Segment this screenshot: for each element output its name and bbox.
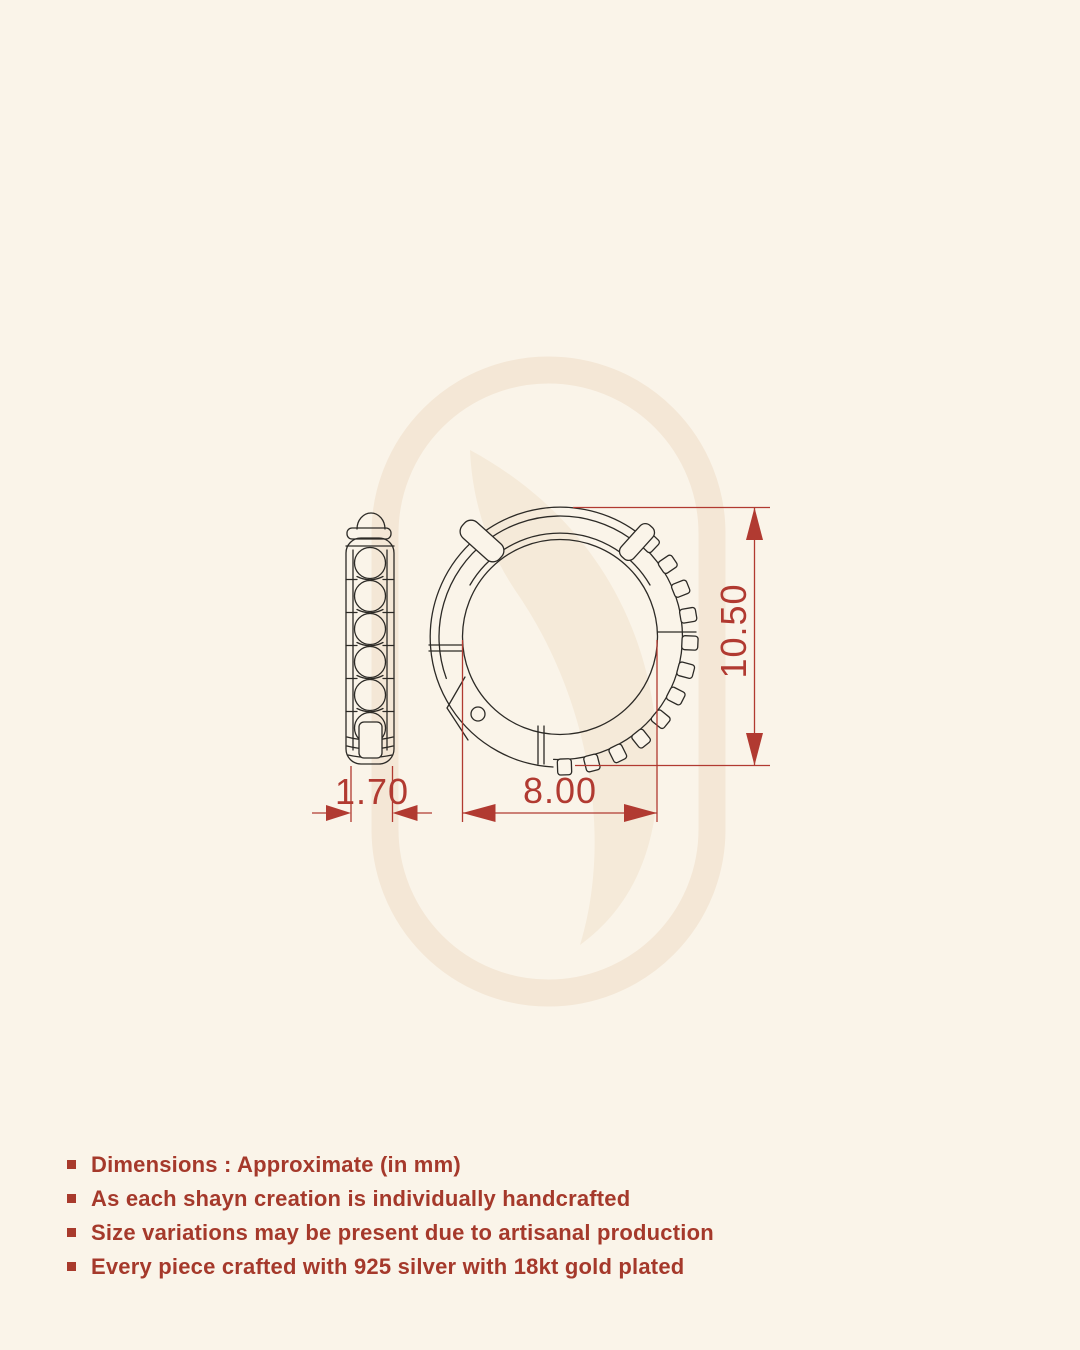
note-row: Every piece crafted with 925 silver with… xyxy=(67,1251,714,1285)
note-text: Dimensions : Approximate (in mm) xyxy=(91,1149,461,1180)
inner-diameter-dimension-label: 8.00 xyxy=(523,770,597,812)
front-left-seam xyxy=(429,645,463,651)
brand-watermark xyxy=(385,370,712,993)
side-view-clasp xyxy=(359,722,382,758)
square-bullet-icon xyxy=(67,1160,76,1169)
square-bullet-icon xyxy=(67,1262,76,1271)
note-text: Every piece crafted with 925 silver with… xyxy=(91,1251,684,1282)
note-row: As each shayn creation is individually h… xyxy=(67,1183,714,1217)
technical-drawing-svg xyxy=(0,0,1080,1350)
front-clasp-cut xyxy=(447,677,468,740)
outer-height-dimension-label: 10.50 xyxy=(713,583,755,678)
earring-side-view-drawing xyxy=(346,513,394,764)
watermark-capsule-icon xyxy=(385,370,712,993)
note-row: Dimensions : Approximate (in mm) xyxy=(67,1149,714,1183)
side-width-dimension-label: 1.70 xyxy=(335,771,409,813)
arrow-up-icon xyxy=(746,508,763,541)
note-row: Size variations may be present due to ar… xyxy=(67,1217,714,1251)
arrow-down-icon xyxy=(746,733,763,766)
note-text: As each shayn creation is individually h… xyxy=(91,1183,630,1214)
front-pin-hole xyxy=(471,707,485,721)
dimension-sheet: 1.70 8.00 10.50 Dimensions : Approximate… xyxy=(0,0,1080,1350)
square-bullet-icon xyxy=(67,1228,76,1237)
product-notes: Dimensions : Approximate (in mm) As each… xyxy=(67,1149,714,1285)
note-text: Size variations may be present due to ar… xyxy=(91,1217,714,1248)
arrow-left-icon xyxy=(463,804,496,822)
square-bullet-icon xyxy=(67,1194,76,1203)
watermark-leaf-icon xyxy=(470,450,658,945)
